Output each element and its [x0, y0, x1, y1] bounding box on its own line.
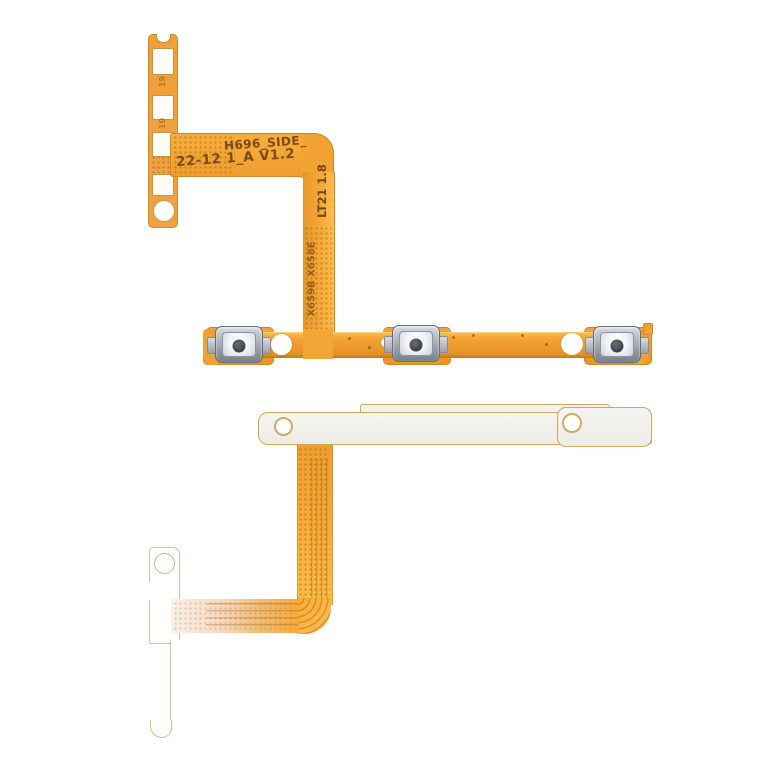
pad-marking: 19 [158, 76, 167, 87]
pad-marking: 10 [158, 118, 167, 129]
metal-dome-button [392, 325, 440, 362]
test-point [545, 343, 548, 346]
ribbon-traces [206, 603, 298, 630]
plate-bottom-hook [150, 720, 172, 738]
button-frame [593, 326, 641, 363]
button-face [600, 332, 634, 357]
test-point [472, 334, 475, 337]
flex-junction [303, 329, 333, 359]
test-point [521, 334, 524, 337]
strip-hole [561, 333, 583, 355]
plate-hole [154, 553, 175, 574]
connector-pad [152, 174, 174, 196]
bracket-hole [274, 417, 293, 436]
connector-notch [156, 34, 171, 43]
connector-pad [152, 95, 174, 120]
strip-end-tab [643, 323, 653, 335]
metal-dome-button [593, 326, 641, 363]
button-dome-dot [410, 338, 423, 351]
lower-flex-corner [297, 598, 331, 634]
product-photo: 19 10 H696_SIDE_ 22-12 1_A V1.2 LT21 1.8… [0, 0, 778, 780]
button-dome-dot [611, 339, 624, 352]
marking-model-codes: X659B X658E [307, 241, 318, 316]
connector-pad [152, 48, 174, 75]
test-point [368, 346, 371, 349]
bracket-hole [562, 413, 582, 433]
plate-notch [147, 582, 152, 600]
connector-screw-hole [153, 200, 175, 222]
button-frame [215, 326, 263, 363]
button-dome-dot [233, 339, 246, 352]
top-connector-strip: 19 10 [148, 34, 178, 228]
button-face [399, 331, 433, 356]
marking-lot-code: LT21 1.8 [315, 164, 329, 218]
button-frame [392, 325, 440, 362]
test-point [452, 336, 455, 339]
test-point [348, 337, 351, 340]
flex-traces [311, 458, 328, 603]
metal-dome-button [215, 326, 263, 363]
strip-hole [271, 334, 292, 355]
plate-lower-strip [170, 640, 197, 726]
button-face [222, 332, 256, 357]
